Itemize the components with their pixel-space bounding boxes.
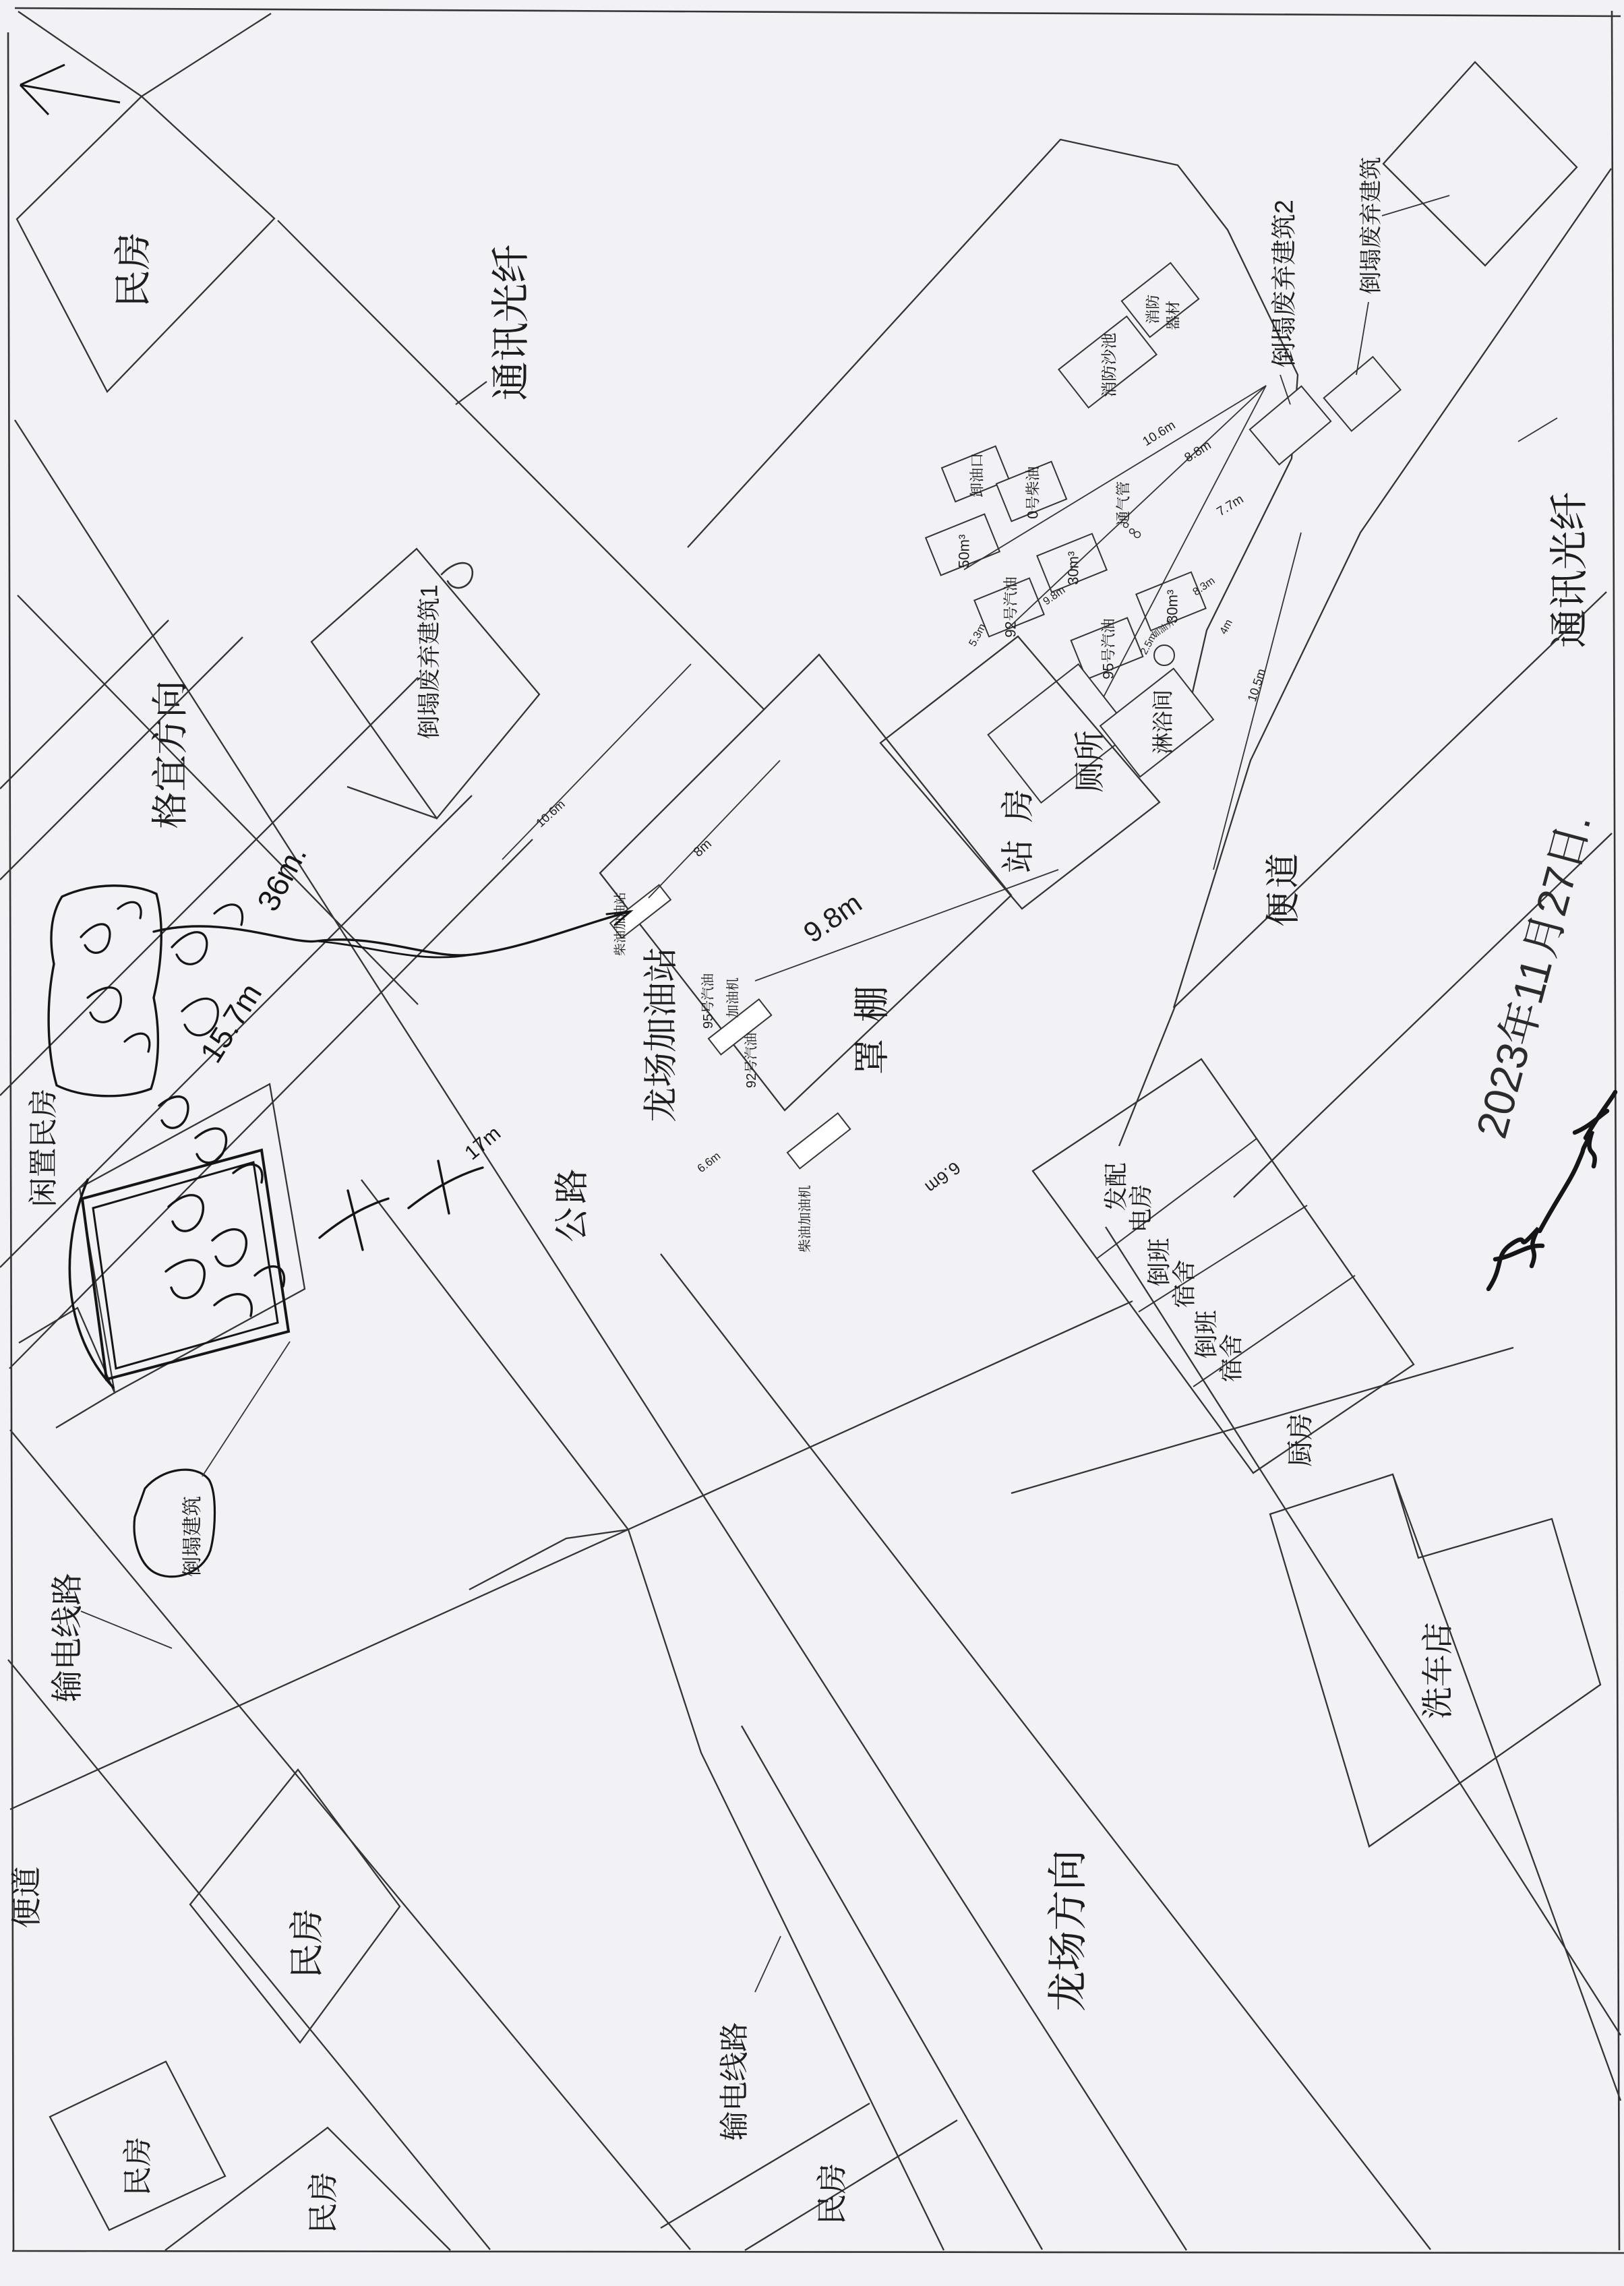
svg-text:92: 92: [744, 1073, 759, 1088]
svg-text:30m³: 30m³: [1065, 551, 1082, 585]
svg-text:50m³: 50m³: [956, 535, 973, 568]
svg-text:2: 2: [1271, 200, 1299, 214]
svg-text:0: 0: [1025, 511, 1042, 519]
svg-text:92: 92: [1002, 621, 1019, 637]
svg-text:1: 1: [416, 584, 442, 597]
svg-text:30m³: 30m³: [1164, 590, 1181, 624]
svg-text:95: 95: [701, 1014, 716, 1029]
